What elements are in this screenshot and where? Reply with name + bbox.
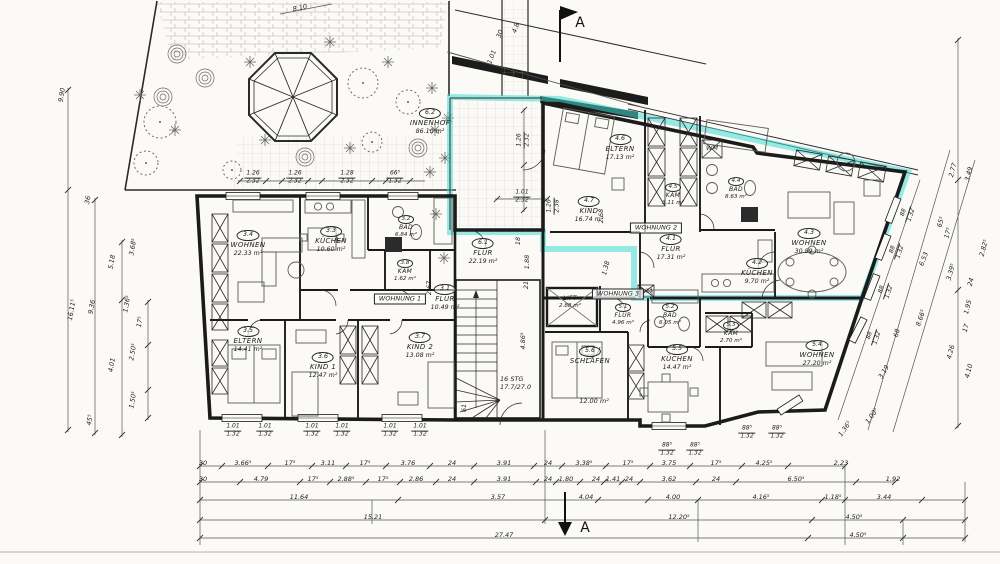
- window-dimension: 66⁵1.32: [386, 171, 403, 186]
- room-label: 4.4BAD8.63 m²: [725, 176, 747, 201]
- dimension-label: 2.23: [834, 460, 848, 467]
- dimension-lines: [0, 4, 1000, 552]
- window-dimension: 88⁵1.32: [658, 443, 675, 458]
- room-label: 3.6KIND 112.47 m²: [309, 352, 338, 380]
- room-label: 5.4WOHNEN27.20 m²: [800, 340, 835, 368]
- dimension-label: 17⁵: [285, 460, 296, 467]
- room-label-innenhof: 6.2INNENHOF86.10 m²: [410, 108, 450, 136]
- dimension-label: 3.91: [497, 460, 511, 467]
- dimension-label: 15.21: [364, 514, 383, 521]
- entry-terrace: [450, 98, 542, 230]
- dimension-label: 4.04: [579, 494, 593, 501]
- room-label: 5.1FLUR4.96 m²: [612, 302, 634, 327]
- dimension-label: 3.76: [401, 460, 415, 467]
- room-label: 5.3KAM2.70 m²: [720, 320, 742, 345]
- dimension-label: 24: [448, 460, 456, 467]
- dimension-label: 12.20⁵: [668, 514, 689, 521]
- window-dimension: 88⁵1.32: [738, 426, 755, 441]
- dimension-label: 36: [84, 195, 92, 204]
- dimension-label: 27.47: [495, 532, 514, 539]
- dimension-label: 3.75: [662, 460, 676, 467]
- dimension-label: 1.92: [886, 476, 900, 483]
- dimension-label: 24: [544, 460, 552, 467]
- window-dimension: 1.262.32: [517, 131, 532, 148]
- dimension-label: 3.57: [491, 494, 505, 501]
- window-dimension: 1.282.32: [338, 171, 355, 186]
- window-dimension: 1.011.32: [411, 424, 428, 439]
- lift-label: LIFT2.88 m²: [559, 295, 581, 310]
- window-dimension: 1.011.32: [256, 424, 273, 439]
- dimension-label: 2.88⁵: [337, 476, 354, 483]
- room-label: 4.1FLUR17.31 m²: [657, 234, 686, 262]
- room-label: 3.2BAD6.84 m²: [395, 214, 417, 239]
- room-label: 5.5KÜCHEN14.47 m²: [661, 344, 693, 372]
- dimension-label: 11.64: [290, 494, 309, 501]
- dimension-label: 17⁵: [136, 316, 144, 328]
- dimension-label: 30: [199, 460, 207, 467]
- dimension-label: 1.18⁵: [824, 494, 841, 501]
- room-area-label: 12.00 m²: [579, 398, 609, 405]
- dimension-label: 17: [962, 323, 970, 333]
- dimension-label: 2.68: [598, 209, 605, 223]
- dimension-label: 18: [515, 237, 522, 245]
- dimension-label: 61: [461, 404, 468, 412]
- dimension-label: 3.44: [877, 494, 891, 501]
- room-label: 3.7KIND 213.08 m²: [406, 332, 435, 360]
- room-label: 5.2BAD6.05 m²: [659, 302, 681, 327]
- dimension-label: 3.38⁵: [575, 460, 592, 467]
- room-label: 4.2KÜCHEN9.70 m²: [741, 258, 773, 286]
- wm-label: WM: [706, 145, 718, 152]
- dimension-label: 17⁵: [623, 460, 634, 467]
- section-marker-bottom: [558, 492, 572, 536]
- dimension-label: 17⁵: [378, 476, 389, 483]
- window-dimension: 1.262.32: [286, 171, 303, 186]
- apartment-label-box: WOHNUNG 2: [630, 223, 682, 234]
- dimension-label: 3.11: [321, 460, 335, 467]
- dimension-label: 2.67: [426, 281, 433, 295]
- window-dimension: 1.012.32: [513, 190, 530, 205]
- dimension-label: 24: [625, 476, 633, 483]
- room-label-hall: 6.1FLUR22.19 m²: [469, 238, 498, 266]
- dimension-label: 24: [712, 476, 720, 483]
- stair-label: 16 STG17.7/27.0: [500, 375, 531, 391]
- room-label: 3.5ELTERN14.41 m²: [233, 326, 262, 354]
- room-label: 5.6SCHLAFEN: [570, 346, 610, 366]
- dimension-label: 6.50⁵: [787, 476, 804, 483]
- room-label: 3.3KÜCHEN10.60 m²: [315, 226, 347, 254]
- dimension-label: 1.41: [606, 476, 620, 483]
- section-letter-top: A: [575, 15, 585, 31]
- section-letter-bottom: A: [580, 520, 590, 536]
- room-label: 3.4WOHNEN22.33 m²: [231, 230, 266, 258]
- window-dimension: 88⁵1.32: [686, 443, 703, 458]
- dimension-label: 30: [199, 476, 207, 483]
- dimension-label: 4.00: [666, 494, 680, 501]
- dimension-label: 4.50⁵: [845, 514, 862, 521]
- dimension-label: 68: [893, 328, 901, 338]
- floor-plan-page: 6.2INNENHOF86.10 m² 6.1FLUR22.19 m² 3.4W…: [0, 0, 1000, 564]
- dimension-label: 24: [592, 476, 600, 483]
- window-dimension: 1.011.32: [333, 424, 350, 439]
- window-dimension: 1.262.38: [547, 197, 562, 214]
- dimension-label: 4.25⁵: [755, 460, 772, 467]
- window-dimension: 1.011.32: [381, 424, 398, 439]
- dimension-label: 17⁵: [308, 476, 319, 483]
- dimension-label: 1.88: [524, 255, 531, 269]
- dimension-label: 4.50⁵: [849, 532, 866, 539]
- room-label: 3.8KAM1.62 m²: [394, 258, 416, 283]
- dimension-label: 17⁵: [360, 460, 371, 467]
- room-label: 4.5KAM3.11 m²: [662, 182, 684, 207]
- dimension-label: 4.16⁵: [752, 494, 769, 501]
- dimension-label: 4.79: [254, 476, 268, 483]
- dimension-label: 1.80: [559, 476, 573, 483]
- dimension-label: 3.62: [662, 476, 676, 483]
- dimension-label: 24: [448, 476, 456, 483]
- room-label: 3.1FLUR10.49 m²: [431, 284, 460, 312]
- room-label: 4.3WOHNEN30.89 m²: [792, 228, 827, 256]
- dimension-label: 21: [523, 281, 530, 289]
- dimension-label: 2.86: [409, 476, 423, 483]
- apartment-label-box: WOHNUNG 1: [374, 294, 426, 305]
- apartment-label-box: WOHNUNG 3: [592, 289, 644, 300]
- window-dimension: 88⁵1.32: [768, 426, 785, 441]
- window-dimension: 1.011.32: [303, 424, 320, 439]
- dimension-label: 24: [967, 277, 975, 287]
- window-dimension: 1.262.32: [244, 171, 261, 186]
- dimension-label: 3.91: [497, 476, 511, 483]
- room-label: 4.6ELTERN17.13 m²: [605, 134, 634, 162]
- dimension-label: 4.86⁵: [520, 332, 527, 349]
- dimension-label: 45⁵: [86, 414, 94, 426]
- dimension-label: 3.66⁵: [234, 460, 251, 467]
- window-dimension: 1.011.32: [224, 424, 241, 439]
- dimension-label: 24: [544, 476, 552, 483]
- dimension-label: 17⁵: [711, 460, 722, 467]
